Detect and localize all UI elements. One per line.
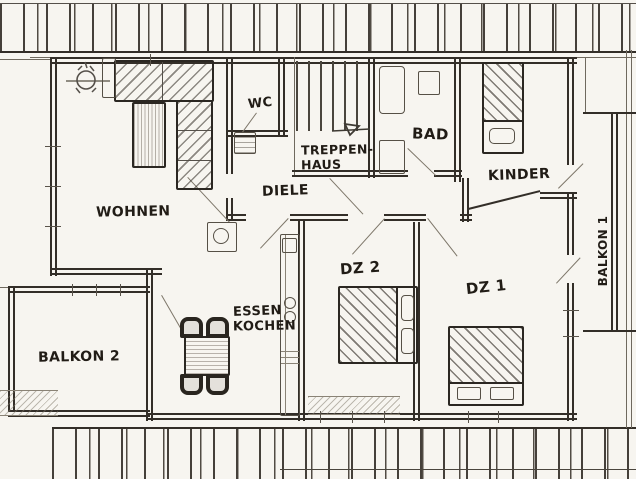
door-swing-dz1-balkon: [556, 257, 581, 283]
wall-exterior-east-upper: [567, 57, 574, 165]
window-tick-balkon2-3: [120, 284, 121, 296]
window-tick-bottom-5: [498, 411, 499, 423]
sofa-side-section: [176, 100, 213, 190]
room-label-treppenhaus-line1: TREPPEN-: [301, 142, 374, 156]
bathtub: [379, 66, 405, 114]
window-tick-east-2: [563, 336, 579, 337]
wall-exterior-west: [50, 57, 57, 276]
wall-kinder-south: [540, 192, 577, 199]
coffee-table: [132, 102, 166, 168]
wall-kinder-chamfer: [468, 190, 540, 210]
room-label-balkon1: BALKON 1: [597, 215, 611, 287]
bed-dz1-pillow-1: [457, 387, 481, 400]
door-swing-dz2: [352, 218, 385, 254]
kitchen-drawer-line-1: [281, 351, 299, 352]
wall-exterior-east-lower: [567, 283, 574, 421]
wall-corridor-south-3: [384, 214, 426, 221]
wall-treppenhaus-west: [294, 57, 295, 176]
room-label-balkon2: BALKON 2: [38, 349, 120, 365]
roof-bottom-inner-line: [280, 469, 636, 470]
roof-edge-right: [626, 50, 632, 428]
door-swing-kinder-balkon: [558, 163, 583, 188]
window-tick-top-wall: [150, 54, 151, 66]
window-tick-bottom-1: [320, 411, 321, 423]
wall-balkon1-stub: [585, 57, 586, 112]
wall-balkon1-top: [583, 112, 636, 114]
room-label-dz2: DZ 2: [340, 260, 382, 279]
bed-kinder-pillow: [489, 128, 515, 144]
bed-dz2-pillow-1: [401, 295, 414, 321]
room-label-dz1: DZ 1: [465, 278, 507, 298]
window-tick-bottom-3: [384, 411, 385, 423]
window-tick-balkon2-1: [72, 284, 73, 296]
bed-dz1-mattress: [450, 328, 522, 384]
stairs-direction-arrow: [330, 118, 372, 140]
window-tick-balkon2-2: [96, 284, 97, 296]
dining-chair-top-right: [206, 317, 229, 338]
wall-wohnen-east: [226, 57, 233, 174]
roof-hatch-bottom: [52, 427, 636, 479]
stove-burner-icon: [213, 228, 229, 244]
kitchen-sink-bowl-1: [284, 297, 296, 309]
wall-balkon1-east: [611, 114, 618, 332]
sofa-cushion-divider: [162, 62, 163, 100]
window-tick-west-1: [45, 146, 61, 147]
knee-wall-hatch-dz2: [308, 396, 400, 415]
room-label-diele: DIELE: [262, 183, 309, 199]
sofa-top-section: [114, 60, 214, 102]
room-label-kochen: KOCHEN: [233, 319, 296, 334]
wall-stub-left-top: [0, 59, 50, 60]
window-tick-east-1: [563, 310, 579, 311]
wall-balkon2-top: [8, 286, 150, 293]
wall-corridor-south-4: [460, 214, 472, 221]
window-tick-west-3: [45, 226, 61, 227]
dining-chair-bottom-right: [206, 374, 229, 395]
sofa-armrest: [102, 58, 116, 98]
bed-dz1-pillow-2: [490, 387, 514, 400]
door-swing-essen: [161, 295, 182, 330]
wall-balkon1-bottom: [583, 330, 636, 332]
bed-dz2-mattress: [340, 288, 398, 362]
room-label-treppenhaus-line2: HAUS: [301, 158, 342, 172]
dining-chair-bottom-left: [180, 374, 203, 395]
wall-wc-east: [278, 57, 285, 136]
door-swing-dz1: [427, 218, 457, 256]
room-label-essen: ESSEN: [233, 304, 282, 319]
sofa-seat-divider-2: [178, 160, 211, 161]
bed-dz1: [448, 326, 524, 406]
toilet: [418, 71, 440, 95]
door-swing-bad: [407, 148, 436, 176]
kitchen-drawer-line-3: [281, 363, 299, 364]
window-tick-bottom-4: [468, 411, 469, 423]
floor-plan: WOHNEN WC TREPPEN- HAUS DIELE BAD KINDER…: [0, 0, 636, 479]
sofa-seat-divider-1: [178, 130, 211, 131]
kitchen-counter-top-square: [282, 238, 297, 253]
dining-chair-top-left: [180, 317, 203, 338]
bed-dz2: [338, 286, 418, 364]
wall-bad-east: [454, 57, 461, 182]
wall-corridor-south-1: [226, 214, 246, 221]
bed-kinder: [482, 62, 524, 154]
bed-kinder-mattress: [484, 64, 522, 122]
roof-hatch-top: [0, 3, 636, 53]
kitchen-drawer-line-2: [281, 357, 299, 358]
room-label-wc: WC: [247, 96, 273, 112]
knee-wall-hatch-outside: [0, 390, 58, 416]
dining-table: [184, 336, 230, 376]
room-label-wohnen: WOHNEN: [96, 204, 171, 220]
room-label-bad: BAD: [412, 126, 449, 143]
wall-exterior-east-mid: [567, 193, 574, 255]
window-tick-west-2: [45, 186, 61, 187]
bath-sink: [379, 140, 405, 174]
wc-radiator: [234, 132, 256, 154]
door-swing-treppenhaus: [329, 178, 363, 215]
room-label-kinder: KINDER: [488, 167, 551, 184]
window-tick-bottom-2: [352, 411, 353, 423]
bed-dz2-pillow-2: [401, 328, 414, 354]
